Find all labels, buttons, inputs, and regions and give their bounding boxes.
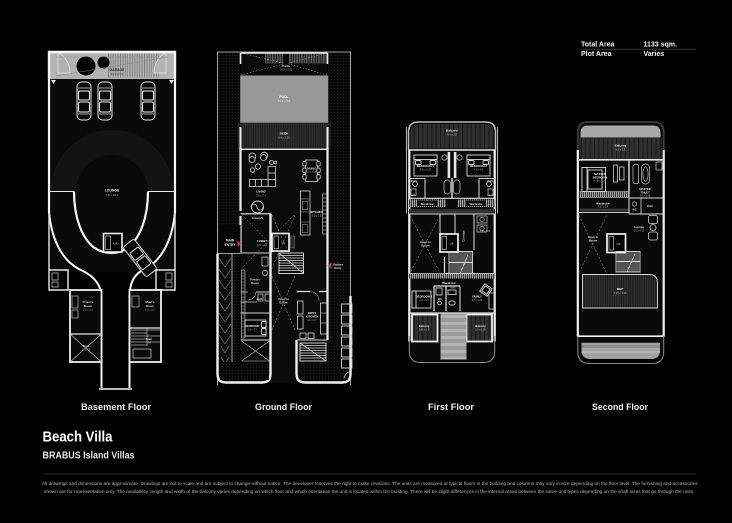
svg-text:Lift: Lift [617, 242, 621, 246]
svg-text:Second Floor: Second Floor [592, 402, 649, 412]
svg-text:ENTRY: ENTRY [225, 243, 237, 247]
svg-text:Room: Room [146, 304, 155, 308]
svg-text:1.75: 1.75 [411, 194, 416, 197]
svg-text:7.35 x 3.75: 7.35 x 3.75 [594, 180, 606, 183]
svg-text:7.35 x 1.6: 7.35 x 1.6 [598, 205, 609, 208]
svg-text:7.35 x 3.95: 7.35 x 3.95 [614, 291, 627, 295]
svg-text:Total Area: Total Area [581, 42, 615, 49]
svg-text:1133 sqm.: 1133 sqm. [644, 42, 678, 49]
svg-text:shown are for representation o: shown are for representation only. The a… [44, 489, 694, 495]
svg-text:6.9 x 2.25: 6.9 x 2.25 [278, 136, 290, 140]
svg-text:Room: Room [84, 304, 93, 308]
svg-text:3.1 x 2.7: 3.1 x 2.7 [307, 319, 317, 322]
svg-text:Bath: Bath [451, 287, 457, 290]
svg-text:First Floor: First Floor [428, 402, 475, 412]
svg-text:Powder: Powder [250, 278, 260, 282]
svg-text:MEP: MEP [617, 287, 624, 291]
svg-text:BRABUS Island Villas: BRABUS Island Villas [43, 450, 135, 462]
svg-text:Varies: Varies [644, 51, 665, 58]
svg-text:Ground Floor: Ground Floor [255, 402, 313, 412]
svg-text:3.3 x 3.7: 3.3 x 3.7 [247, 329, 257, 332]
svg-text:LIVING: LIVING [256, 190, 267, 194]
svg-text:Lift: Lift [450, 242, 454, 246]
svg-text:Below: Below [279, 301, 288, 305]
svg-text:BEDROOM: BEDROOM [593, 176, 608, 180]
svg-text:Room: Room [251, 281, 259, 285]
svg-text:BEDROOM 1: BEDROOM 1 [417, 164, 434, 168]
svg-text:2.6 x 2.2: 2.6 x 2.2 [83, 309, 93, 312]
svg-text:Lift: Lift [113, 242, 117, 246]
svg-text:3.2 x 4.0: 3.2 x 4.0 [419, 299, 429, 302]
svg-text:Plot Area: Plot Area [581, 51, 612, 58]
svg-text:Trellis: Trellis [282, 64, 291, 68]
svg-text:5.0 x 2.6: 5.0 x 2.6 [312, 215, 322, 218]
svg-text:14.0 x 0.95: 14.0 x 0.95 [280, 69, 293, 72]
svg-text:Balcony: Balcony [419, 324, 430, 328]
svg-text:Bath: Bath [257, 297, 263, 301]
svg-text:Balcony: Balcony [475, 324, 486, 328]
svg-text:2.6 x 2.2: 2.6 x 2.2 [145, 309, 155, 312]
svg-text:Bath: Bath [411, 179, 417, 183]
svg-text:Beach Villa: Beach Villa [43, 429, 114, 446]
svg-text:Artwork: Artwork [252, 216, 264, 220]
svg-text:2.6x2.6: 2.6x2.6 [82, 349, 91, 352]
svg-text:WC: WC [438, 298, 442, 301]
svg-text:All drawings and dimensions ar: All drawings and dimensions are approxim… [42, 481, 698, 487]
svg-text:Basement Floor: Basement Floor [81, 402, 152, 412]
svg-text:14.0 x 5.0: 14.0 x 5.0 [111, 72, 124, 76]
svg-text:3.0 x 2.85: 3.0 x 2.85 [640, 195, 651, 198]
svg-text:Entry: Entry [334, 266, 342, 270]
svg-text:5.8 x 2.4: 5.8 x 2.4 [257, 243, 268, 247]
svg-text:4.0 x 4.0: 4.0 x 4.0 [474, 169, 484, 172]
svg-text:14.0 x 5.6: 14.0 x 5.6 [278, 99, 291, 103]
svg-text:5.0 x 7.1: 5.0 x 7.1 [256, 194, 267, 198]
svg-text:Below: Below [589, 239, 598, 243]
svg-text:DECK: DECK [280, 132, 289, 136]
svg-text:WC: WC [632, 209, 636, 212]
svg-text:Stair: Stair [146, 337, 152, 341]
svg-text:BEDROOM 3: BEDROOM 3 [416, 295, 433, 299]
svg-text:Wardrobe: Wardrobe [470, 202, 483, 206]
svg-text:Bath: Bath [487, 179, 493, 183]
svg-text:1.7 x 1.95: 1.7 x 1.95 [475, 329, 486, 332]
svg-text:Bath: Bath [647, 205, 653, 208]
svg-text:KITCHEN: KITCHEN [310, 210, 323, 214]
svg-text:9.9 x 2.8: 9.9 x 2.8 [616, 148, 627, 152]
svg-text:9.9 x 2.8: 9.9 x 2.8 [447, 133, 458, 137]
svg-text:4.0 x 4.25: 4.0 x 4.25 [420, 169, 432, 172]
svg-text:FAMILY: FAMILY [472, 295, 482, 299]
svg-text:Hall: Hall [147, 342, 152, 345]
svg-text:BEDROOM: BEDROOM [245, 324, 260, 328]
svg-text:Wardrobe: Wardrobe [421, 202, 434, 206]
svg-text:MASTER: MASTER [639, 187, 650, 191]
svg-text:3.0 x 4.35: 3.0 x 4.35 [634, 230, 645, 233]
svg-text:2.45 x 1.9: 2.45 x 1.9 [419, 329, 430, 332]
svg-text:3.3 x 4.05: 3.3 x 4.05 [472, 299, 483, 302]
svg-text:Wardrobe: Wardrobe [442, 281, 456, 285]
svg-text:7.8 x 16.2: 7.8 x 16.2 [106, 193, 119, 197]
svg-text:Corridor: Corridor [462, 230, 466, 242]
svg-text:1.75: 1.75 [489, 194, 494, 197]
svg-text:LOBBY: LOBBY [257, 239, 268, 243]
svg-text:MAIN: MAIN [226, 239, 235, 243]
svg-text:BEDROOM 2: BEDROOM 2 [470, 164, 487, 168]
svg-text:2.7 x 1.75: 2.7 x 1.75 [306, 171, 317, 174]
svg-text:Balcony: Balcony [615, 144, 627, 148]
svg-text:Below: Below [421, 244, 430, 248]
svg-text:Lounge: Lounge [634, 225, 645, 229]
svg-text:Balcony: Balcony [446, 129, 458, 133]
svg-text:Store: Store [82, 344, 90, 348]
svg-text:KITCHEN: KITCHEN [306, 315, 318, 319]
